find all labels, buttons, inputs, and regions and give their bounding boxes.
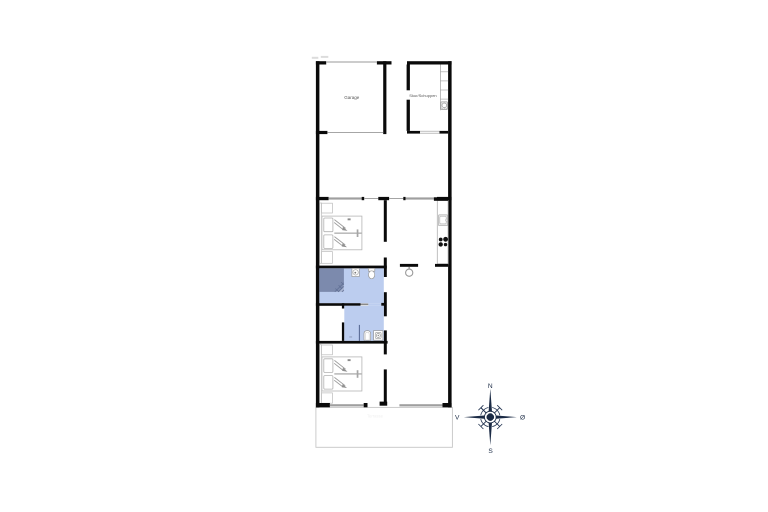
svg-text:Terrasse: Terrasse (367, 413, 384, 418)
svg-text:N: N (488, 383, 493, 390)
svg-text:Skur/Schuppen: Skur/Schuppen (409, 93, 436, 98)
svg-text:S: S (488, 448, 493, 455)
svg-text:Garage: Garage (344, 95, 360, 100)
svg-text:V: V (455, 415, 460, 422)
svg-text:Ø: Ø (520, 415, 525, 422)
